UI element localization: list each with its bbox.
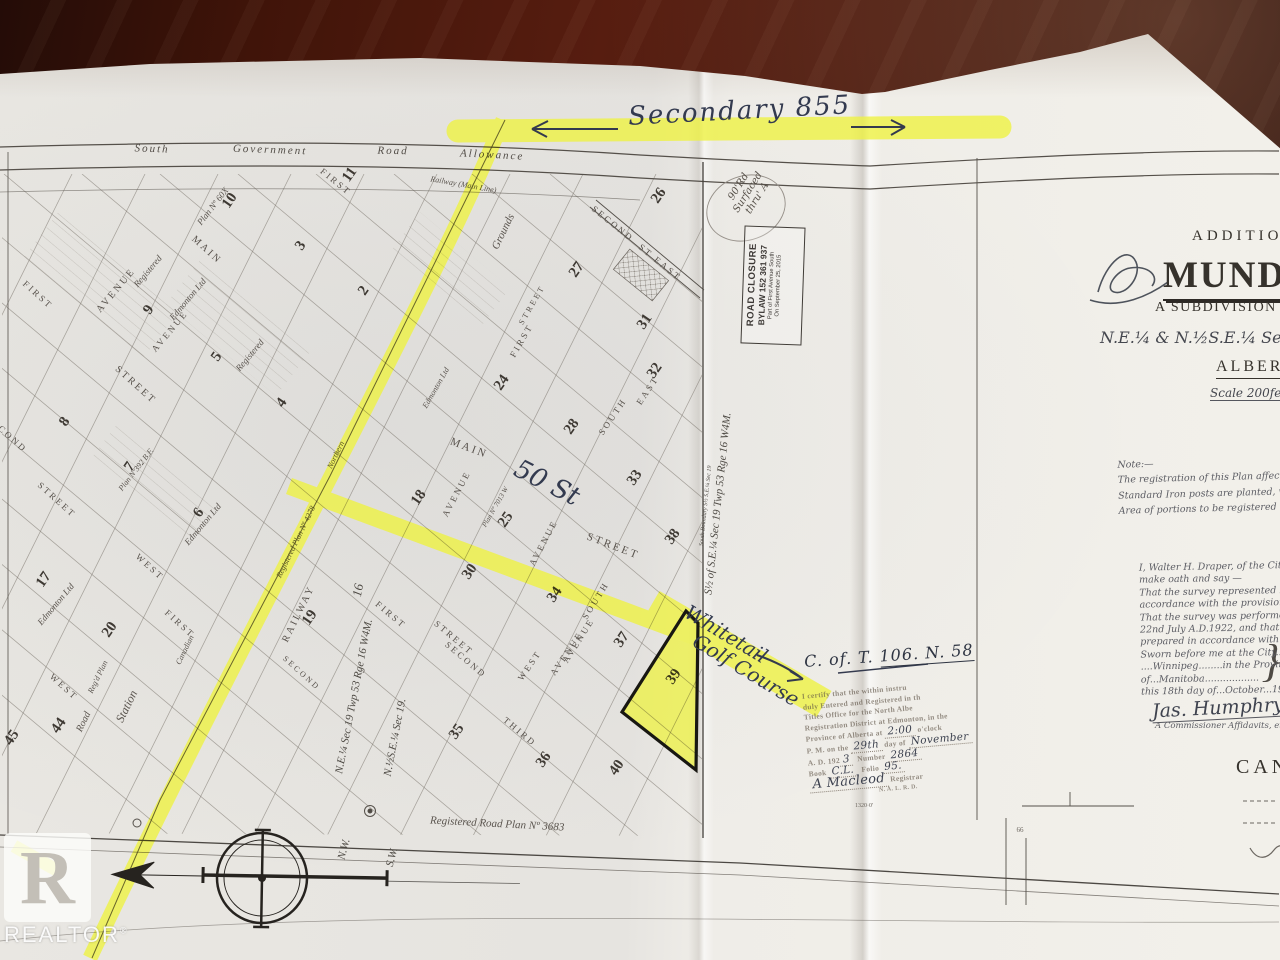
- title-scale: Scale 200feet: [1210, 386, 1280, 401]
- plat-map-paper: MAINAVENUEAVENUEFIRSTSTREETSECONDSTREETW…: [0, 0, 1280, 960]
- map-label: SECOND: [0, 413, 29, 455]
- map-label: 66: [1017, 826, 1025, 834]
- map-label: Canadian: [174, 634, 196, 666]
- title-alberta: ALBERTA: [1216, 358, 1280, 379]
- map-label: MAIN: [449, 436, 490, 461]
- affidavit-line: ....Winnipeg........in the Province: [1141, 659, 1280, 675]
- plat-map-drawing: MAINAVENUEAVENUEFIRSTSTREETSECONDSTREETW…: [0, 0, 1280, 960]
- map-label: AVENUE: [527, 518, 560, 568]
- affidavit-block: I, Walter H. Draper, of the City of Win …: [1139, 559, 1280, 699]
- lot-number: 40: [606, 757, 628, 778]
- map-label: 16: [349, 582, 366, 598]
- lot-number: 35: [446, 721, 468, 742]
- lot-number: 4: [273, 395, 291, 411]
- lot-number: 32: [644, 360, 666, 381]
- lot-number: 25: [495, 509, 517, 530]
- title-mundare: MUNDA: [1163, 254, 1280, 301]
- registered-trademark-symbol: ®: [120, 926, 129, 936]
- lot-number: 28: [561, 416, 583, 437]
- title-subdivision: A SUBDIVISION OF PA: [1155, 300, 1280, 316]
- lot-number: 33: [624, 467, 646, 488]
- title-addition: ADDITION: [1192, 228, 1280, 245]
- compass-rose: [111, 827, 521, 931]
- map-label: Registered Road Plan Nº 3683: [429, 814, 565, 833]
- lot-number: 17: [33, 569, 55, 591]
- lot-number: 20: [99, 619, 121, 640]
- map-label: Government: [233, 143, 308, 158]
- map-label: WEST: [48, 672, 80, 703]
- yellow-highlighter-marks: [14, 120, 1000, 958]
- map-label: FIRST: [374, 599, 409, 630]
- map-label: THIRD: [501, 715, 538, 748]
- lot-number: 8: [56, 414, 73, 429]
- map-label: STREET: [36, 480, 78, 520]
- title-legal-description: N.E.¼ & N.½S.E.¼ Sec 19. Tw: [1100, 328, 1280, 347]
- map-label: N.½S.E.¼ Sec 19.: [381, 698, 408, 779]
- map-label: WEST: [134, 552, 166, 583]
- map-label: FIRST: [163, 608, 197, 640]
- surveyor-signature-flourish: [1090, 255, 1168, 303]
- lot-number: 37: [611, 629, 633, 651]
- map-label: STREET: [585, 531, 641, 562]
- photo-of-plat-map: { "annotations": { "secondary": "Seconda…: [0, 0, 1280, 960]
- map-label: Road: [376, 145, 408, 158]
- map-label: South: [134, 142, 169, 155]
- commissioner-title: A Commissioner Affidavits, etc.: [1155, 721, 1280, 731]
- lot-number: 3: [292, 238, 309, 253]
- map-label: N.W.: [335, 838, 352, 862]
- lot-number: 45: [1, 727, 23, 748]
- map-label: FIRST: [508, 322, 535, 359]
- land-titles-registry-stamp: I certify that the within instru duly En…: [802, 677, 987, 803]
- map-label: Grounds: [490, 212, 517, 252]
- lot-number: 18: [408, 487, 430, 508]
- realtor-logo: R: [4, 833, 91, 922]
- map-label: SOUTH: [596, 396, 628, 437]
- lot-number: 24: [491, 372, 513, 394]
- lot-number: 26: [648, 185, 670, 207]
- map-label: MAIN: [189, 234, 224, 267]
- lot-number: 27: [566, 259, 588, 281]
- map-label: Station: [113, 688, 140, 725]
- map-label: WEST: [516, 648, 544, 682]
- map-label: AVENUE: [440, 469, 473, 519]
- lot-number: 31: [634, 311, 656, 332]
- map-label: Road: [74, 709, 94, 735]
- lot-number: 44: [48, 715, 70, 737]
- map-label: Edmonton Ltd: [420, 365, 452, 411]
- map-label: STREET: [113, 364, 159, 407]
- realtor-r-icon: R: [20, 840, 75, 916]
- realtor-wordmark: REALTOR®: [4, 922, 129, 948]
- canada-label: CANAD: [1236, 756, 1280, 779]
- stamp-text: Registrar: [890, 771, 924, 783]
- map-label: 1320·0': [855, 803, 873, 809]
- realtor-brand-text: REALTOR: [4, 922, 120, 947]
- lot-number: 2: [355, 283, 372, 298]
- lot-number: 36: [533, 749, 555, 771]
- note-block: Note:— The registration of this Plan aff…: [1117, 452, 1280, 519]
- road-closure-stamp: ROAD CLOSURE BYLAW 152 361 937 Part of F…: [740, 225, 805, 345]
- highlighted-lot-39: [622, 611, 698, 770]
- map-label: SECOND: [590, 204, 636, 244]
- map-label: Reg'd Plan: [86, 659, 110, 696]
